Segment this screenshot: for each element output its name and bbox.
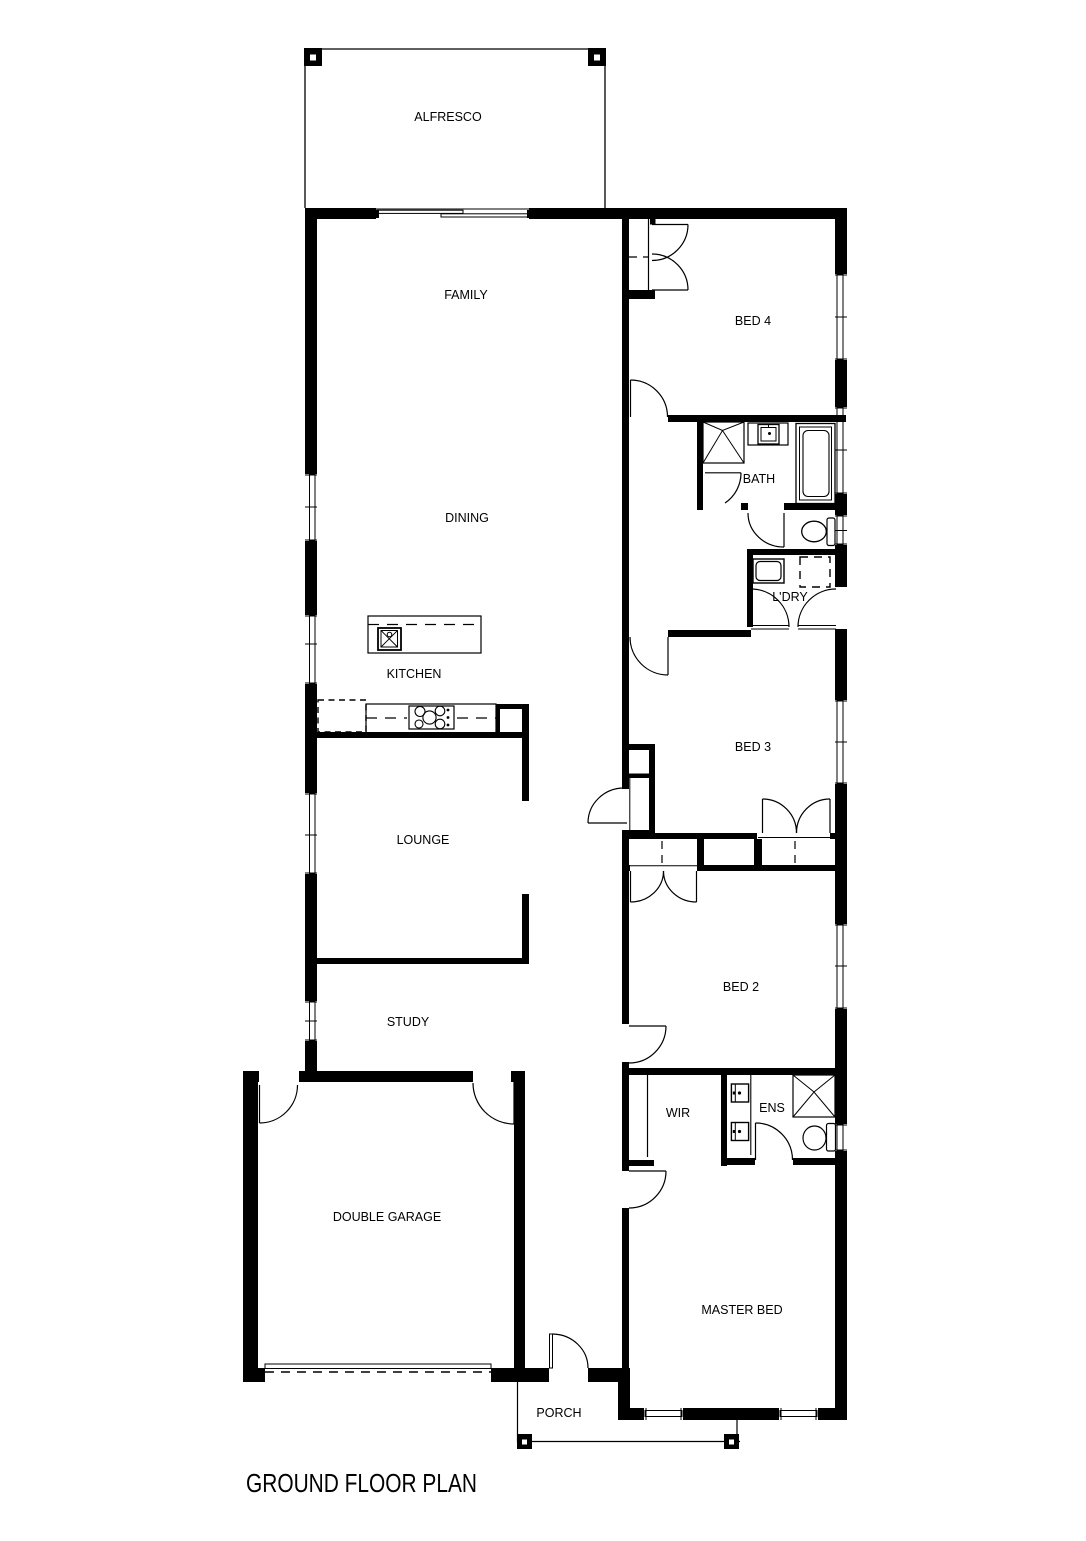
svg-text:BED 2: BED 2 — [723, 980, 759, 994]
svg-text:STUDY: STUDY — [387, 1015, 430, 1029]
svg-text:BATH: BATH — [743, 472, 775, 486]
svg-text:BED 3: BED 3 — [735, 740, 771, 754]
svg-text:DINING: DINING — [445, 511, 489, 525]
svg-text:LOUNGE: LOUNGE — [397, 833, 450, 847]
svg-text:ALFRESCO: ALFRESCO — [414, 110, 482, 124]
svg-text:KITCHEN: KITCHEN — [387, 667, 442, 681]
svg-text:PORCH: PORCH — [536, 1406, 581, 1420]
svg-text:L'DRY: L'DRY — [772, 590, 808, 604]
svg-text:FAMILY: FAMILY — [444, 288, 488, 302]
svg-text:ENS: ENS — [759, 1101, 785, 1115]
svg-text:MASTER BED: MASTER BED — [701, 1303, 782, 1317]
svg-text:GROUND FLOOR PLAN: GROUND FLOOR PLAN — [246, 1470, 477, 1498]
svg-text:WIR: WIR — [666, 1106, 690, 1120]
svg-text:DOUBLE GARAGE: DOUBLE GARAGE — [333, 1210, 441, 1224]
svg-text:BED 4: BED 4 — [735, 314, 771, 328]
